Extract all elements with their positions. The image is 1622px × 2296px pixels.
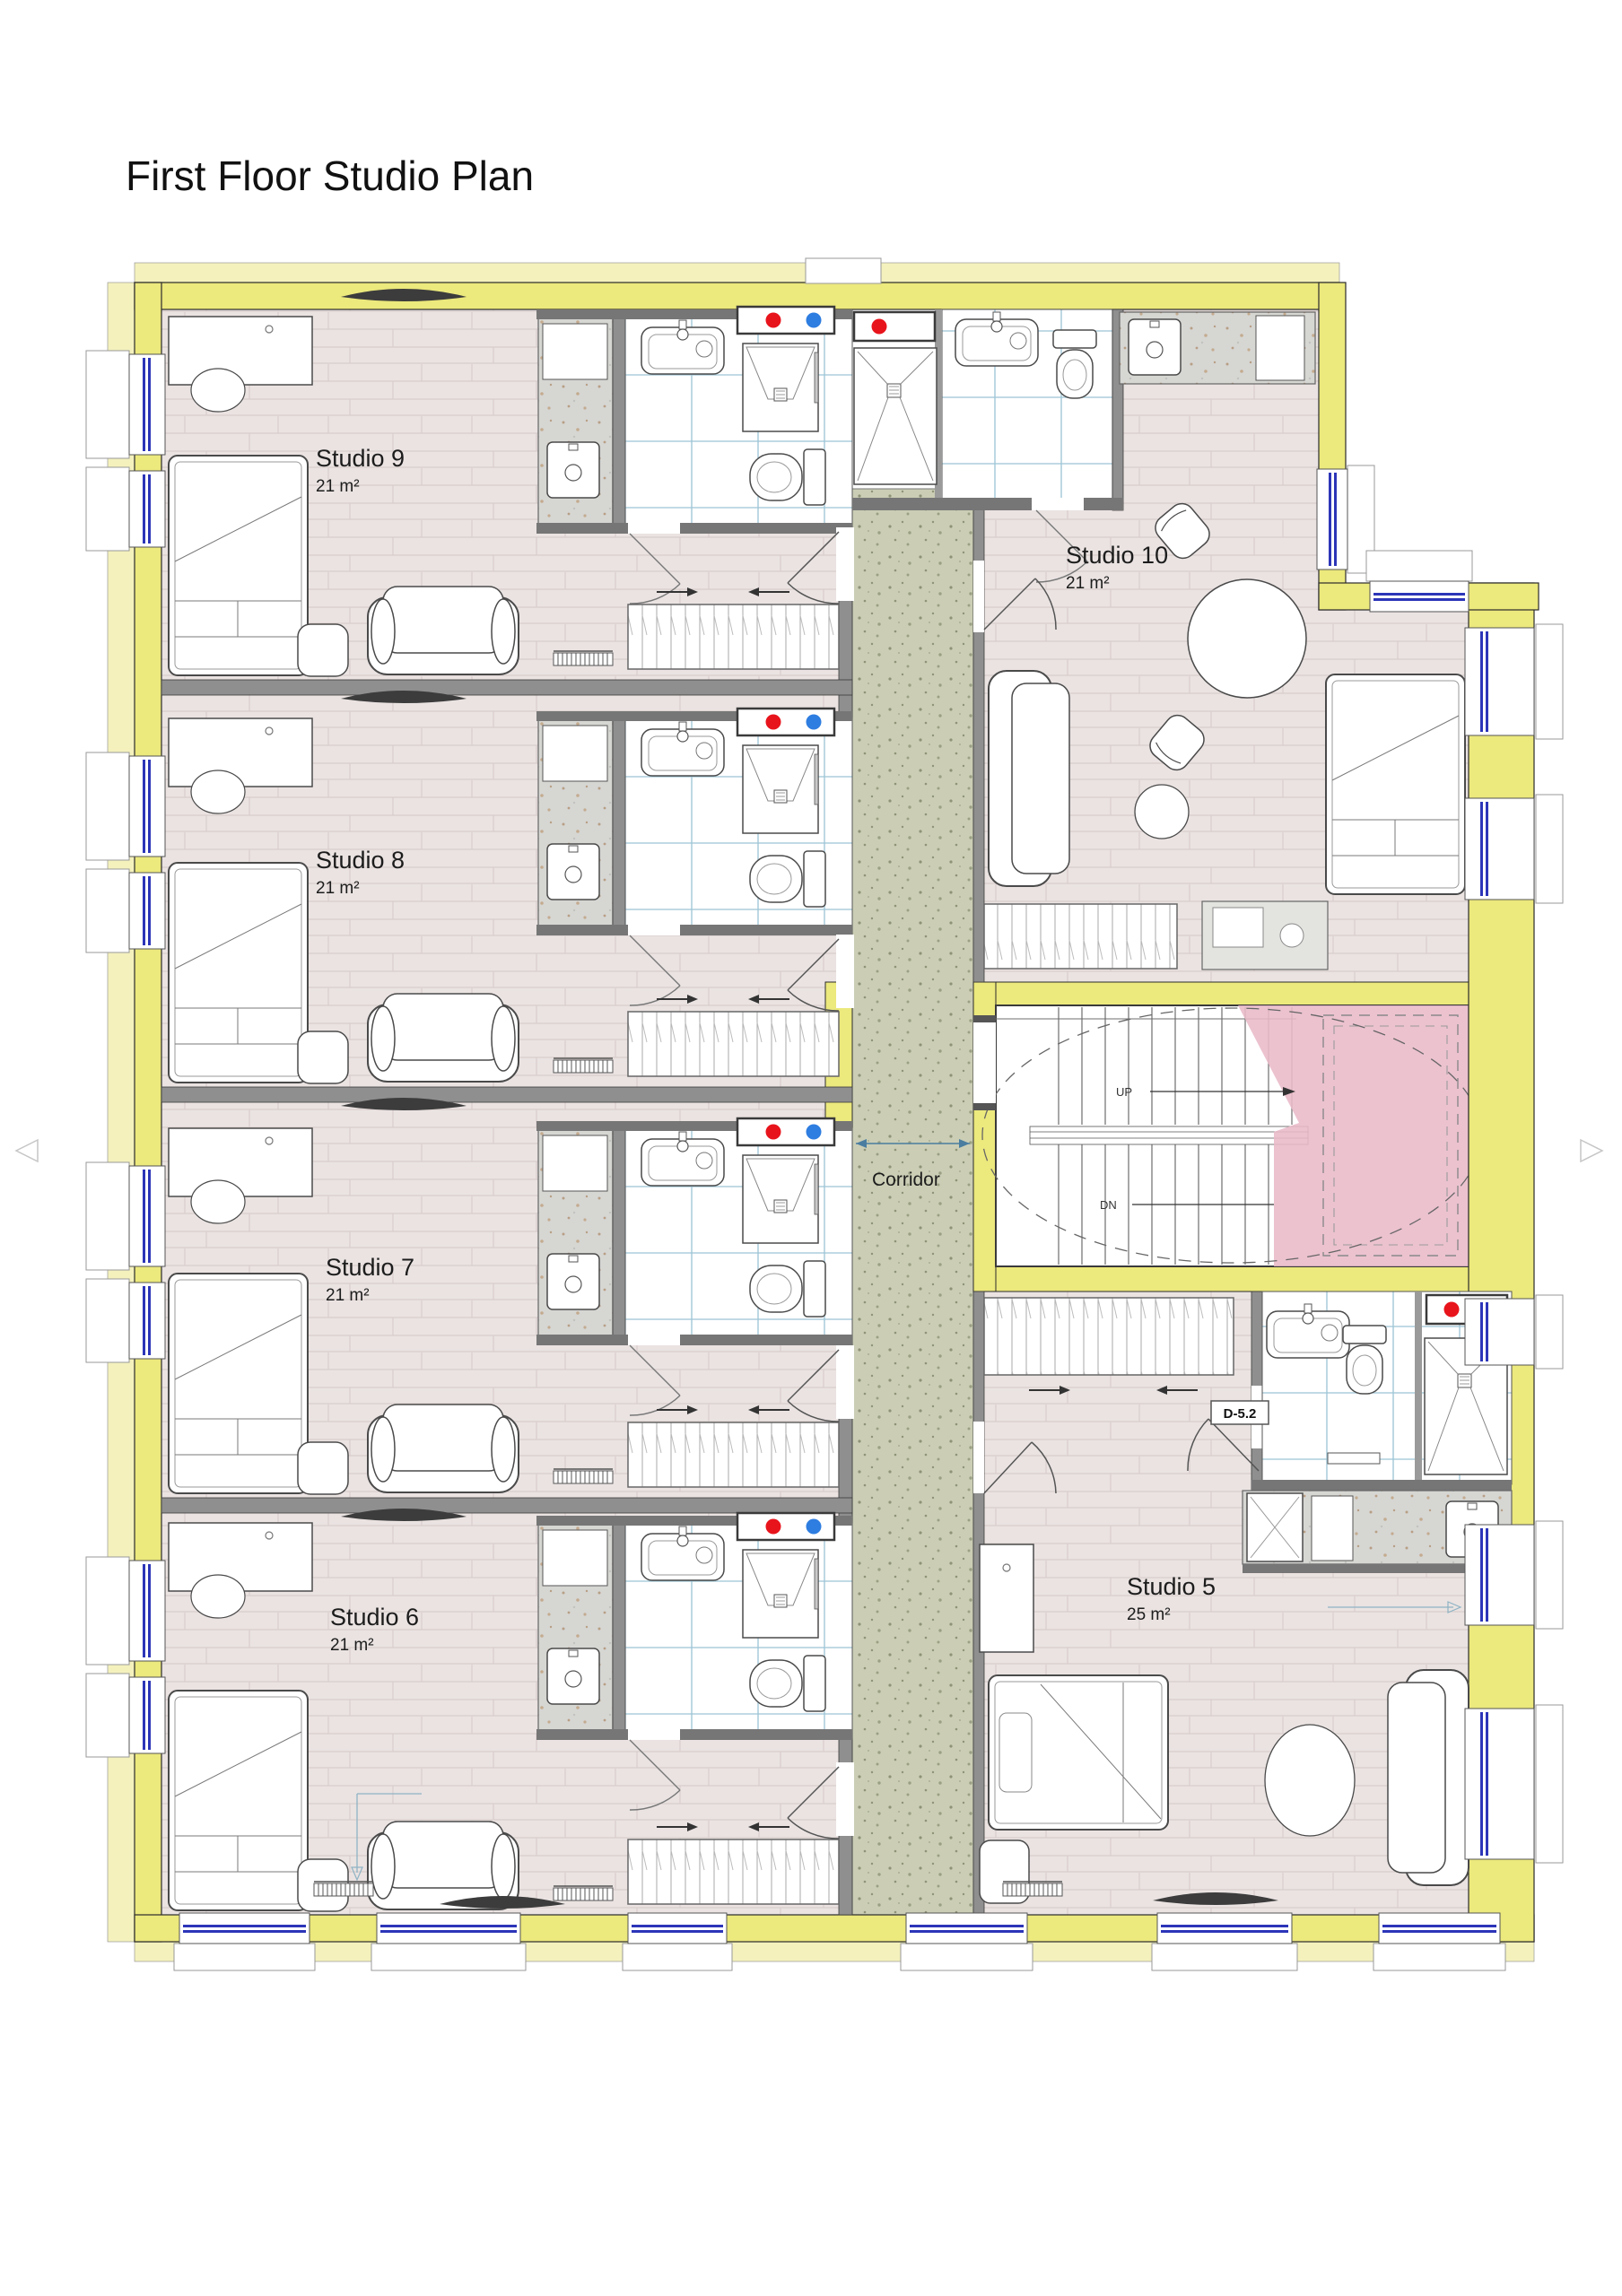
- window: [1373, 1913, 1505, 1970]
- toilet-icon: [1343, 1326, 1386, 1394]
- studio-8-label: Studio 8: [316, 847, 405, 874]
- stair-up-label: UP: [1116, 1085, 1132, 1099]
- wall-bottom: [135, 1915, 1534, 1942]
- door-tag-d52: D-5.2: [1224, 1406, 1257, 1422]
- studio-5-label: Studio 5: [1127, 1573, 1216, 1600]
- wall-pale-band: [135, 263, 1339, 283]
- divider-wall: [161, 1087, 852, 1102]
- studio-7-area: 21 m²: [326, 1286, 370, 1305]
- stair-door-opening: [973, 1022, 996, 1103]
- studio-8-area: 21 m²: [316, 879, 360, 898]
- wall-pale-band: [135, 1942, 1534, 1961]
- radiator-icon: [314, 1882, 373, 1896]
- window: [371, 1913, 526, 1970]
- window: [86, 351, 165, 458]
- desk: [980, 1544, 1033, 1652]
- window: [1152, 1913, 1297, 1970]
- window: [86, 1674, 165, 1757]
- washbasin-icon: [1267, 1304, 1349, 1358]
- rug: [1265, 1725, 1355, 1836]
- counter-unit: [1312, 1496, 1353, 1561]
- window: [1465, 1521, 1563, 1629]
- section-marker-icon: [1581, 1140, 1602, 1161]
- window: [623, 1913, 732, 1970]
- page-title: First Floor Studio Plan: [126, 152, 534, 199]
- kitchen-sink-icon: [1129, 319, 1181, 375]
- wall-top: [135, 283, 1339, 309]
- window: [86, 467, 165, 551]
- studio-10-area: 21 m²: [1066, 574, 1110, 593]
- window: [86, 1162, 165, 1270]
- stair-rail: [1030, 1126, 1308, 1144]
- corridor-label: Corridor: [872, 1170, 940, 1190]
- toilet-icon: [1053, 330, 1096, 398]
- door-opening: [1032, 498, 1084, 510]
- wall-band: [1251, 1480, 1512, 1491]
- window: [1465, 1705, 1563, 1863]
- stair-dn-label: DN: [1100, 1198, 1117, 1212]
- dining-table: [1188, 579, 1306, 698]
- window-sill: [806, 258, 881, 283]
- window: [174, 1913, 315, 1970]
- sofa: [989, 671, 1069, 886]
- studio-5-area: 25 m²: [1127, 1605, 1171, 1624]
- bed: [1326, 674, 1465, 894]
- corridor-floor: [852, 489, 973, 1915]
- window: [901, 1913, 1033, 1970]
- bathroom-wall: [1415, 1291, 1422, 1484]
- studio-6-label: Studio 6: [330, 1604, 419, 1631]
- studio-10-label: Studio 10: [1066, 542, 1168, 569]
- section-marker-icon: [16, 1140, 38, 1161]
- window: [86, 752, 165, 860]
- window: [1366, 551, 1472, 612]
- window: [86, 1557, 165, 1665]
- radiator-icon: [1003, 1882, 1062, 1896]
- window: [86, 1279, 165, 1362]
- floor-plan-canvas: UP DN Studio 9 21 m²: [0, 0, 1622, 2296]
- fridge: [1256, 316, 1304, 380]
- divider-wall: [161, 680, 852, 695]
- door-opening: [973, 1422, 984, 1493]
- wardrobe: [984, 1298, 1234, 1375]
- fridge: [1247, 1493, 1303, 1561]
- sofa: [1388, 1670, 1469, 1885]
- pouf: [1135, 785, 1189, 839]
- studio-9-area: 21 m²: [316, 477, 360, 496]
- window: [86, 869, 165, 952]
- window: [1465, 795, 1563, 903]
- studio-7-label: Studio 7: [326, 1254, 414, 1281]
- studio-6-area: 21 m²: [330, 1636, 374, 1655]
- window: [1465, 624, 1563, 739]
- window: [1317, 465, 1374, 573]
- water-supply-box: [854, 312, 935, 341]
- divider-wall: [161, 1498, 852, 1513]
- door-opening: [973, 561, 984, 632]
- wardrobe: [984, 904, 1177, 969]
- window: [1465, 1295, 1563, 1369]
- shower-icon: [854, 348, 937, 484]
- bench: [1328, 1453, 1380, 1464]
- bed: [989, 1675, 1168, 1830]
- studio-9-label: Studio 9: [316, 445, 405, 472]
- washbasin-icon: [955, 312, 1038, 366]
